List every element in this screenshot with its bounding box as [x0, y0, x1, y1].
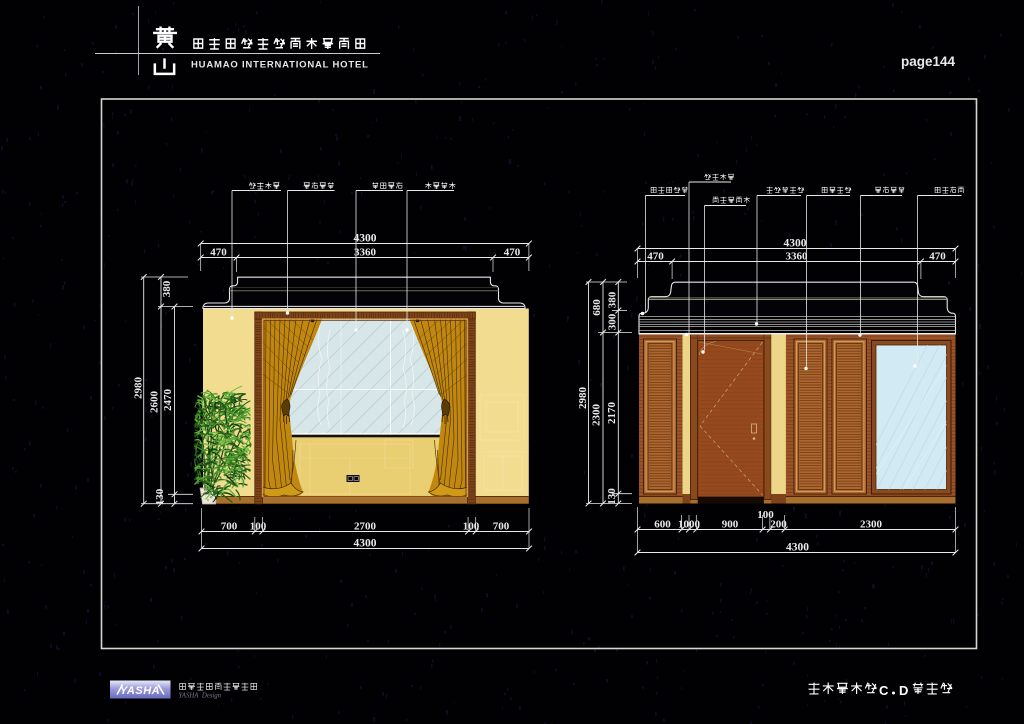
svg-text:C: C [879, 683, 889, 698]
svg-text:700: 700 [493, 521, 510, 533]
svg-text:YASHA: YASHA [120, 685, 160, 697]
svg-text:YASHA Design: YASHA Design [179, 693, 222, 700]
svg-text:470: 470 [929, 251, 946, 263]
svg-text:HUAMAO INTERNATIONAL HOTEL: HUAMAO INTERNATIONAL HOTEL [191, 60, 369, 71]
svg-text:2980: 2980 [577, 387, 589, 410]
svg-text:300: 300 [607, 313, 619, 330]
svg-text:600: 600 [654, 519, 671, 531]
svg-text:380: 380 [607, 291, 619, 308]
svg-text:4300: 4300 [784, 238, 807, 250]
svg-text:2700: 2700 [354, 521, 377, 533]
svg-text:380: 380 [161, 280, 173, 297]
svg-text:2600: 2600 [149, 391, 161, 414]
svg-text:2300: 2300 [591, 404, 603, 427]
svg-text:4300: 4300 [354, 538, 377, 550]
svg-text:3360: 3360 [786, 251, 809, 263]
svg-text:2470: 2470 [162, 389, 174, 412]
svg-text:2980: 2980 [133, 377, 145, 400]
svg-text:470: 470 [210, 247, 227, 259]
svg-text:2170: 2170 [606, 402, 618, 425]
svg-text:470: 470 [647, 251, 664, 263]
svg-text:4300: 4300 [786, 542, 809, 554]
svg-text:700: 700 [221, 521, 238, 533]
svg-text:470: 470 [504, 247, 521, 259]
svg-text:4300: 4300 [354, 233, 377, 245]
svg-text:680: 680 [591, 299, 603, 316]
svg-text:900: 900 [722, 519, 739, 531]
svg-text:130: 130 [154, 488, 166, 505]
svg-text:2300: 2300 [860, 519, 883, 531]
svg-text:page144: page144 [901, 54, 956, 69]
svg-text:130: 130 [606, 488, 618, 505]
svg-text:3360: 3360 [354, 247, 377, 259]
svg-text:D: D [899, 683, 908, 698]
svg-text:100: 100 [250, 521, 267, 533]
